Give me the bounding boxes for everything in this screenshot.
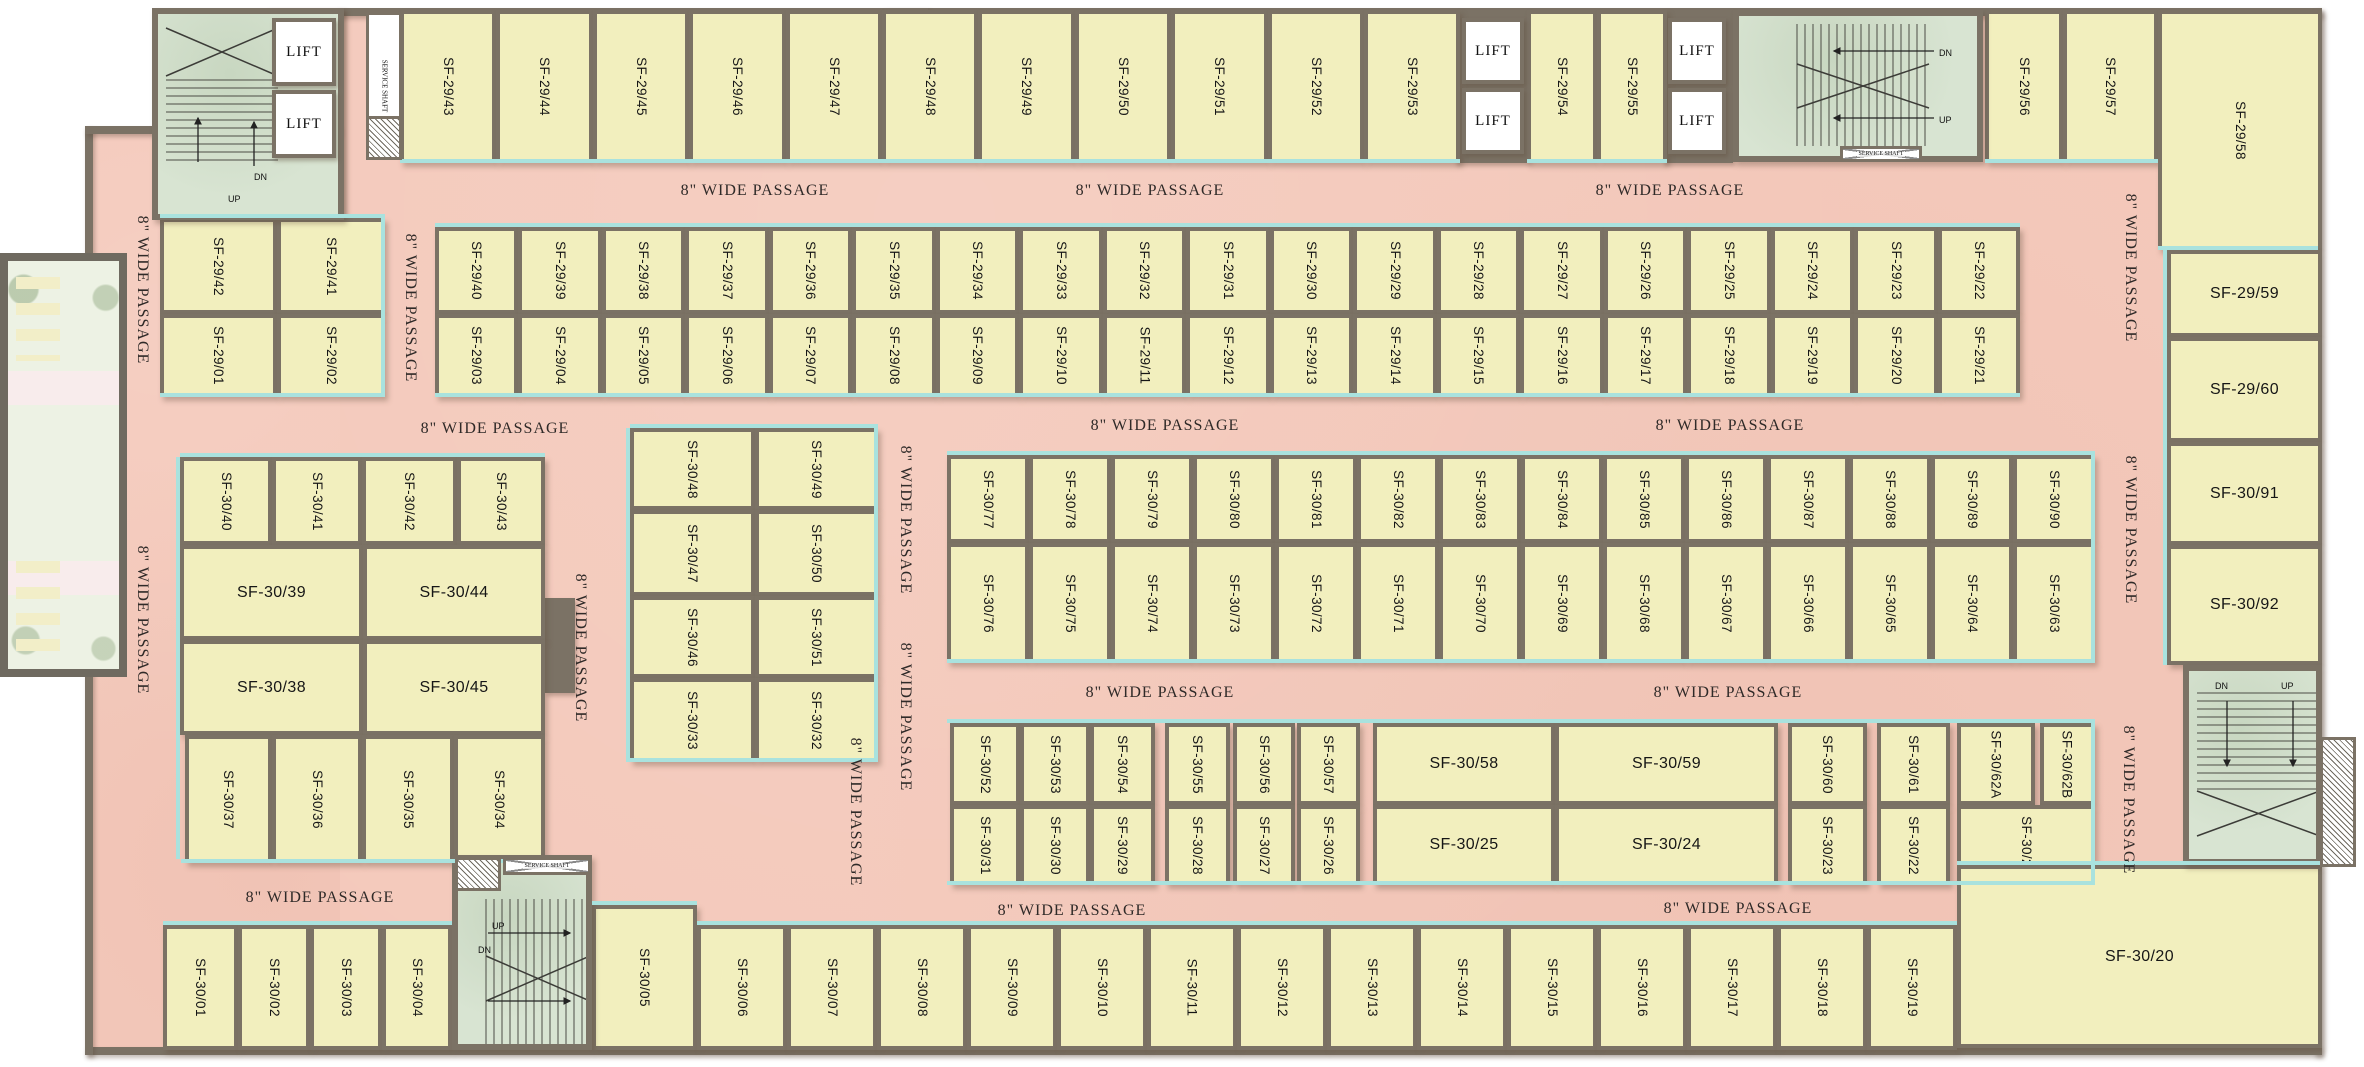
passage-label: 8" WIDE PASSAGE [1656,417,1805,435]
unit-sf-29-38: SF-29/38 [602,227,685,314]
unit-sf-30-39: SF-30/39 [180,545,363,640]
unit-sf-30-06: SF-30/06 [697,925,787,1050]
staircase: DNUP [2183,665,2322,865]
unit-label: SF-29/36 [803,241,818,300]
unit-sf-30-23: SF-30/23 [1788,805,1867,885]
unit-label: SF-29/53 [1404,57,1419,116]
lift-label: LIFT [1475,113,1511,130]
unit-sf-29-56: SF-29/56 [1985,10,2063,163]
lift-label: LIFT [286,44,322,61]
unit-sf-30-31: SF-30/31 [950,805,1020,885]
unit-label: SF-29/29 [1387,241,1402,300]
unit-sf-30-52: SF-30/52 [950,723,1020,805]
unit-label: SF-29/07 [803,326,818,385]
unit-sf-29-53: SF-29/53 [1364,10,1460,163]
storefront-line [2158,246,2318,250]
unit-sf-30-79: SF-30/79 [1111,455,1193,543]
unit-label: SF-29/39 [552,241,567,300]
unit-sf-29-09: SF-29/09 [936,314,1019,397]
unit-sf-29-08: SF-29/08 [852,314,936,397]
unit-label: SF-30/30 [1047,816,1062,875]
lift-6: LIFT [1668,88,1726,154]
unit-sf-29-15: SF-29/15 [1437,314,1520,397]
unit-label: SF-29/31 [1220,241,1235,300]
court-stripe [8,371,119,405]
unit-sf-30-33: SF-30/33 [630,678,755,762]
unit-sf-30-66: SF-30/66 [1767,543,1849,663]
unit-sf-29-28: SF-29/28 [1437,227,1520,314]
unit-label: SF-30/51 [809,608,824,667]
unit-label: SF-29/11 [1137,327,1152,385]
unit-sf-30-83: SF-30/83 [1439,455,1521,543]
storefront-line [947,881,2095,885]
storefront-line [400,159,1460,163]
storefront-line [626,428,630,762]
unit-sf-30-13: SF-30/13 [1327,925,1417,1050]
court-tiles [16,277,60,361]
unit-label: SF-30/48 [685,440,700,499]
passage-label: 8" WIDE PASSAGE [846,738,864,887]
unit-sf-30-68: SF-30/68 [1603,543,1685,663]
unit-sf-30-71: SF-30/71 [1357,543,1439,663]
unit-sf-30-67: SF-30/67 [1685,543,1767,663]
unit-sf-29-50: SF-29/50 [1075,10,1171,163]
unit-label: SF-30/33 [685,691,700,750]
unit-sf-29-26: SF-29/26 [1604,227,1687,314]
unit-label: SF-29/03 [469,326,484,385]
stair-direction-label: DN [254,172,267,182]
unit-sf-30-78: SF-30/78 [1029,455,1111,543]
unit-label: SF-30/87 [1800,470,1815,529]
storefront-line [435,393,2020,397]
unit-sf-30-87: SF-30/87 [1767,455,1849,543]
unit-label: SF-30/68 [1636,574,1651,633]
unit-label: SF-29/46 [730,57,745,116]
passage-label: 8" WIDE PASSAGE [681,182,830,200]
unit-label: SF-29/15 [1471,326,1486,385]
unit-sf-30-61: SF-30/61 [1877,723,1950,805]
unit-label: SF-30/32 [809,691,824,750]
unit-label: SF-29/06 [719,326,734,385]
unit-sf-29-57: SF-29/57 [2063,10,2158,163]
unit-sf-29-47: SF-29/47 [786,10,882,163]
unit-label: SF-30/62B [2060,730,2075,798]
unit-sf-30-42: SF-30/42 [362,457,457,545]
unit-sf-30-09: SF-30/09 [967,925,1057,1050]
passage-label: 8" WIDE PASSAGE [1076,182,1225,200]
unit-sf-30-55: SF-30/55 [1165,723,1230,805]
unit-label: SF-29/50 [1115,57,1130,116]
unit-sf-29-02: SF-29/02 [277,314,385,397]
unit-sf-30-17: SF-30/17 [1687,925,1777,1050]
unit-label: SF-30/07 [824,958,839,1017]
unit-label: SF-30/06 [734,958,749,1017]
unit-sf-30-10: SF-30/10 [1057,925,1147,1050]
unit-label: SF-30/91 [2210,485,2279,503]
unit-label: SF-30/89 [1964,470,1979,529]
stair-direction-label: UP [492,921,505,931]
service-shaft: SERVICE SHAFT [1840,146,1922,162]
unit-label: SF-29/38 [636,241,651,300]
unit-label: SF-29/49 [1019,57,1034,116]
unit-label: SF-30/01 [193,958,208,1017]
unit-sf-30-25: SF-30/25 [1373,805,1555,885]
unit-sf-29-51: SF-29/51 [1171,10,1268,163]
unit-sf-29-37: SF-29/37 [685,227,769,314]
unit-sf-29-11: SF-29/11 [1103,314,1186,397]
unit-sf-30-19: SF-30/19 [1867,925,1957,1050]
unit-sf-30-48: SF-30/48 [630,428,755,510]
storefront-line [1985,159,2158,163]
unit-label: SF-30/83 [1472,470,1487,529]
unit-label: SF-29/17 [1638,326,1653,385]
unit-sf-30-41: SF-30/41 [272,457,362,545]
unit-label: SF-30/15 [1544,958,1559,1017]
storefront-line [176,457,180,859]
unit-label: SF-29/41 [323,237,338,296]
unit-sf-29-31: SF-29/31 [1186,227,1270,314]
unit-label: SF-29/55 [1624,57,1639,116]
unit-label: SF-30/12 [1274,958,1289,1017]
unit-label: SF-30/43 [493,472,508,531]
unit-label: SF-30/37 [221,770,236,829]
passage-label: 8" WIDE PASSAGE [1664,900,1813,918]
unit-label: SF-29/08 [886,326,901,385]
storefront-line [1957,861,2322,865]
unit-label: SF-29/19 [1805,326,1820,385]
unit-label: SF-29/45 [633,57,648,116]
unit-label: SF-30/62A [1988,730,2003,798]
unit-label: SF-30/18 [1814,958,1829,1017]
unit-label: SF-30/66 [1800,574,1815,633]
storefront-line [697,921,1957,925]
unit-label: SF-29/30 [1304,241,1319,300]
service-shaft-label: SERVICE SHAFT [1857,151,1904,157]
unit-sf-30-72: SF-30/72 [1275,543,1357,663]
unit-sf-30-90: SF-30/90 [2013,455,2095,543]
unit-label: SF-30/14 [1454,958,1469,1017]
unit-sf-29-13: SF-29/13 [1270,314,1353,397]
unit-label: SF-30/74 [1144,574,1159,633]
unit-sf-29-07: SF-29/07 [769,314,852,397]
passage-label: 8" WIDE PASSAGE [896,643,914,792]
unit-sf-29-45: SF-29/45 [593,10,689,163]
unit-sf-29-23: SF-29/23 [1854,227,1938,314]
lift-5: LIFT [1668,18,1726,84]
unit-sf-30-89: SF-30/89 [1931,455,2013,543]
unit-sf-30-65: SF-30/65 [1849,543,1931,663]
unit-sf-30-88: SF-30/88 [1849,455,1931,543]
unit-sf-29-58: SF-29/58 [2158,10,2322,250]
unit-label: SF-30/19 [1904,958,1919,1017]
unit-sf-29-40: SF-29/40 [435,227,518,314]
unit-sf-29-01: SF-29/01 [160,314,277,397]
passage-label: 8" WIDE PASSAGE [2119,726,2137,875]
unit-label: SF-30/25 [1429,836,1498,854]
unit-label: SF-30/92 [2210,596,2279,614]
shaft-hatch [2320,737,2356,867]
unit-sf-29-44: SF-29/44 [496,10,593,163]
unit-sf-29-29: SF-29/29 [1353,227,1437,314]
unit-label: SF-30/39 [237,584,306,602]
passage-label: 8" WIDE PASSAGE [2121,456,2139,605]
storefront-line [160,393,385,397]
unit-label: SF-30/67 [1718,574,1733,633]
unit-sf-29-54: SF-29/54 [1527,10,1597,163]
unit-sf-30-62b: SF-30/62B [2040,723,2095,805]
unit-label: SF-30/82 [1390,470,1405,529]
unit-sf-30-47: SF-30/47 [630,510,755,596]
staircase: DNUP [1733,10,1983,162]
storefront-line [630,424,878,428]
unit-label: SF-30/10 [1094,958,1109,1017]
unit-label: SF-29/13 [1304,326,1319,385]
unit-label: SF-30/90 [2046,470,2061,529]
unit-sf-30-04: SF-30/04 [382,925,452,1050]
unit-sf-29-60: SF-29/60 [2167,337,2322,442]
unit-label: SF-30/11 [1184,959,1199,1017]
unit-label: SF-30/20 [2105,948,2174,966]
unit-label: SF-29/25 [1721,241,1736,300]
unit-label: SF-30/80 [1226,470,1241,529]
unit-sf-30-05: SF-30/05 [592,905,697,1050]
unit-sf-30-11: SF-30/11 [1147,925,1237,1050]
unit-label: SF-29/33 [1053,241,1068,300]
unit-sf-30-75: SF-30/75 [1029,543,1111,663]
unit-label: SF-29/21 [1971,326,1986,385]
unit-sf-29-22: SF-29/22 [1938,227,2020,314]
unit-sf-29-19: SF-29/19 [1771,314,1854,397]
unit-sf-30-38: SF-30/38 [180,640,363,735]
unit-sf-29-30: SF-29/30 [1270,227,1353,314]
unit-sf-29-32: SF-29/32 [1103,227,1186,314]
stair-direction-label: UP [1939,115,1952,125]
unit-label: SF-29/02 [323,326,338,385]
unit-label: SF-29/47 [826,57,841,116]
lift-label: LIFT [1679,113,1715,130]
unit-label: SF-29/20 [1888,326,1903,385]
unit-sf-30-22: SF-30/22 [1877,805,1950,885]
unit-sf-29-43: SF-29/43 [400,10,496,163]
unit-sf-29-24: SF-29/24 [1771,227,1854,314]
court-tiles [16,561,60,657]
unit-sf-29-05: SF-29/05 [602,314,685,397]
unit-sf-30-27: SF-30/27 [1233,805,1295,885]
passage-label: 8" WIDE PASSAGE [2121,194,2139,343]
stair-direction-label: UP [228,194,241,204]
unit-sf-30-18: SF-30/18 [1777,925,1867,1050]
unit-label: SF-30/35 [400,770,415,829]
unit-label: SF-29/34 [970,241,985,300]
unit-label: SF-30/09 [1004,958,1019,1017]
unit-label: SF-30/65 [1882,574,1897,633]
open-court [0,253,127,677]
unit-sf-29-17: SF-29/17 [1604,314,1687,397]
storefront-line [874,428,878,762]
floor-plan: UPDNDNUPUPDNDNUPSF-29/43SF-29/44SF-29/45… [0,0,2364,1067]
unit-sf-30-49: SF-30/49 [755,428,878,510]
storefront-line [947,659,2095,663]
unit-sf-30-64: SF-30/64 [1931,543,2013,663]
passage-label: 8" WIDE PASSAGE [246,889,395,907]
unit-sf-30-53: SF-30/53 [1020,723,1090,805]
unit-sf-29-12: SF-29/12 [1186,314,1270,397]
unit-sf-29-36: SF-29/36 [769,227,852,314]
passage-label: 8" WIDE PASSAGE [1654,684,1803,702]
unit-sf-30-20: SF-30/20 [1957,865,2322,1048]
unit-label: SF-30/57 [1321,735,1336,794]
lift-2: LIFT [272,90,336,158]
unit-label: SF-29/37 [719,241,734,300]
unit-sf-30-69: SF-30/69 [1521,543,1603,663]
unit-label: SF-29/42 [211,237,226,296]
unit-sf-30-03: SF-30/03 [310,925,382,1050]
unit-sf-30-12: SF-30/12 [1237,925,1327,1050]
unit-label: SF-30/08 [914,958,929,1017]
unit-sf-30-26: SF-30/26 [1297,805,1360,885]
unit-label: SF-30/52 [977,735,992,794]
unit-sf-30-62a: SF-30/62A [1957,723,2035,805]
unit-label: SF-30/22 [1906,816,1921,875]
unit-label: SF-30/45 [419,679,488,697]
unit-sf-30-46: SF-30/46 [630,596,755,678]
storefront-line [592,901,697,905]
unit-label: SF-30/86 [1718,470,1733,529]
unit-label: SF-30/49 [809,440,824,499]
unit-label: SF-30/23 [1820,816,1835,875]
unit-label: SF-30/77 [980,470,995,529]
unit-sf-30-14: SF-30/14 [1417,925,1507,1050]
unit-label: SF-30/28 [1190,816,1205,875]
unit-label: SF-30/50 [809,524,824,583]
unit-sf-30-60: SF-30/60 [1788,723,1867,805]
unit-label: SF-29/51 [1212,57,1227,116]
unit-sf-30-74: SF-30/74 [1111,543,1193,663]
unit-label: SF-29/58 [2232,101,2247,160]
lift-label: LIFT [1679,43,1715,60]
unit-sf-30-37: SF-30/37 [185,735,272,863]
unit-label: SF-30/29 [1115,816,1130,875]
unit-sf-30-36: SF-30/36 [272,735,362,863]
unit-label: SF-29/54 [1554,57,1569,116]
unit-sf-29-48: SF-29/48 [882,10,978,163]
unit-label: SF-29/14 [1387,326,1402,385]
unit-sf-30-43: SF-30/43 [457,457,545,545]
unit-label: SF-29/05 [636,326,651,385]
unit-sf-30-92: SF-30/92 [2167,545,2322,665]
unit-label: SF-29/12 [1220,326,1235,385]
unit-sf-29-27: SF-29/27 [1520,227,1604,314]
passage-label: 8" WIDE PASSAGE [401,234,419,383]
stair-direction-label: DN [2215,681,2228,691]
unit-sf-29-46: SF-29/46 [689,10,786,163]
unit-label: SF-30/04 [409,958,424,1017]
unit-sf-30-54: SF-30/54 [1090,723,1155,805]
shaft-hatch [455,857,501,891]
storefront-line [947,451,2095,455]
unit-label: SF-30/61 [1906,735,1921,794]
unit-sf-30-45: SF-30/45 [363,640,545,735]
unit-sf-30-28: SF-30/28 [1165,805,1230,885]
unit-label: SF-30/63 [2046,574,2061,633]
unit-sf-30-35: SF-30/35 [362,735,454,863]
unit-label: SF-29/23 [1888,241,1903,300]
unit-sf-30-85: SF-30/85 [1603,455,1685,543]
unit-sf-29-16: SF-29/16 [1520,314,1604,397]
unit-label: SF-30/47 [685,524,700,583]
unit-label: SF-29/04 [552,326,567,385]
unit-sf-30-77: SF-30/77 [947,455,1029,543]
unit-sf-30-29: SF-30/29 [1090,805,1155,885]
lift-label: LIFT [286,116,322,133]
unit-label: SF-30/38 [237,679,306,697]
unit-label: SF-29/48 [922,57,937,116]
unit-label: SF-30/03 [338,958,353,1017]
lift-1: LIFT [272,18,336,86]
unit-label: SF-29/22 [1971,241,1986,300]
passage-label: 8" WIDE PASSAGE [896,446,914,595]
unit-label: SF-30/78 [1062,470,1077,529]
unit-sf-29-34: SF-29/34 [936,227,1019,314]
unit-label: SF-30/70 [1472,574,1487,633]
unit-label: SF-30/34 [492,770,507,829]
unit-sf-29-42: SF-29/42 [160,218,277,314]
unit-label: SF-29/24 [1805,241,1820,300]
unit-sf-29-33: SF-29/33 [1019,227,1103,314]
unit-sf-29-35: SF-29/35 [852,227,936,314]
unit-label: SF-29/09 [970,326,985,385]
unit-sf-30-01: SF-30/01 [163,925,238,1050]
unit-label: SF-29/18 [1721,326,1736,385]
unit-sf-29-49: SF-29/49 [978,10,1075,163]
unit-sf-29-55: SF-29/55 [1597,10,1667,163]
passage-label: 8" WIDE PASSAGE [1086,684,1235,702]
storefront-line [180,453,545,457]
unit-label: SF-30/64 [1964,574,1979,633]
unit-label: SF-30/73 [1226,574,1241,633]
storefront-line [947,719,2095,723]
unit-label: SF-30/56 [1257,735,1272,794]
unit-label: SF-30/40 [218,472,233,531]
unit-sf-30-82: SF-30/82 [1357,455,1439,543]
unit-sf-29-20: SF-29/20 [1854,314,1938,397]
shaft-hatch [366,116,402,160]
unit-label: SF-30/26 [1321,816,1336,875]
unit-sf-30-58: SF-30/58 [1373,723,1555,805]
unit-sf-29-04: SF-29/04 [518,314,602,397]
storefront-line [163,921,452,925]
storefront-line [435,223,2020,227]
lift-label: LIFT [1475,43,1511,60]
unit-sf-30-91: SF-30/91 [2167,442,2322,545]
unit-sf-30-16: SF-30/16 [1597,925,1687,1050]
unit-sf-30-44: SF-30/44 [363,545,545,640]
unit-sf-29-41: SF-29/41 [277,218,385,314]
storefront-line [2091,455,2095,663]
unit-label: SF-29/28 [1471,241,1486,300]
unit-label: SF-30/55 [1190,735,1205,794]
service-shaft-label: SERVICE SHAFT [523,863,570,869]
passage-label: 8" WIDE PASSAGE [133,546,151,695]
unit-sf-29-06: SF-29/06 [685,314,769,397]
unit-label: SF-30/05 [637,948,652,1007]
unit-label: SF-29/56 [2016,57,2031,116]
unit-label: SF-30/36 [309,770,324,829]
passage-label: 8" WIDE PASSAGE [998,902,1147,920]
unit-label: SF-29/10 [1053,326,1068,385]
stair-direction-label: DN [478,945,491,955]
service-shaft: SERVICE SHAFT [503,857,591,875]
